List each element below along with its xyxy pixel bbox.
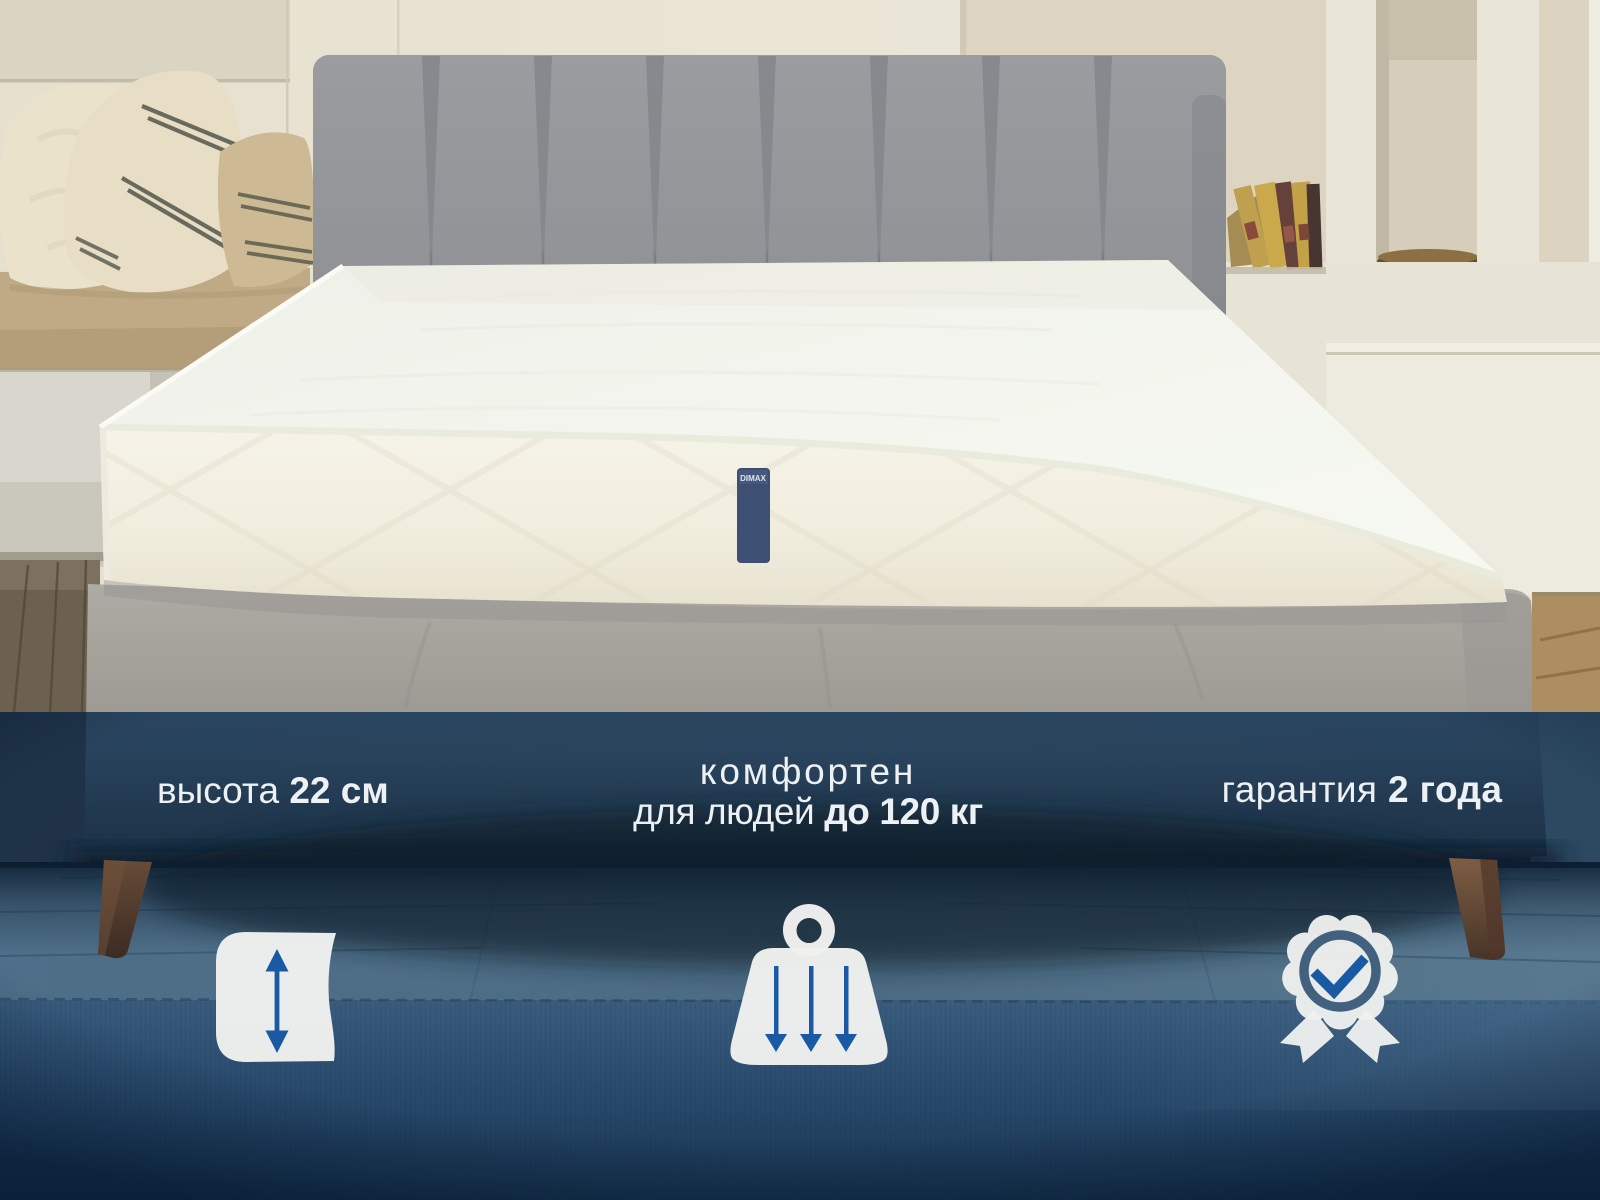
svg-text:высота 22 см: высота 22 см <box>157 770 389 811</box>
svg-text:DIMAX: DIMAX <box>740 474 766 483</box>
svg-text:гарантия 2 года: гарантия 2 года <box>1222 769 1503 810</box>
svg-text:для людей до 120 кг: для людей до 120 кг <box>633 791 983 832</box>
svg-text:комфортен: комфортен <box>700 751 916 792</box>
